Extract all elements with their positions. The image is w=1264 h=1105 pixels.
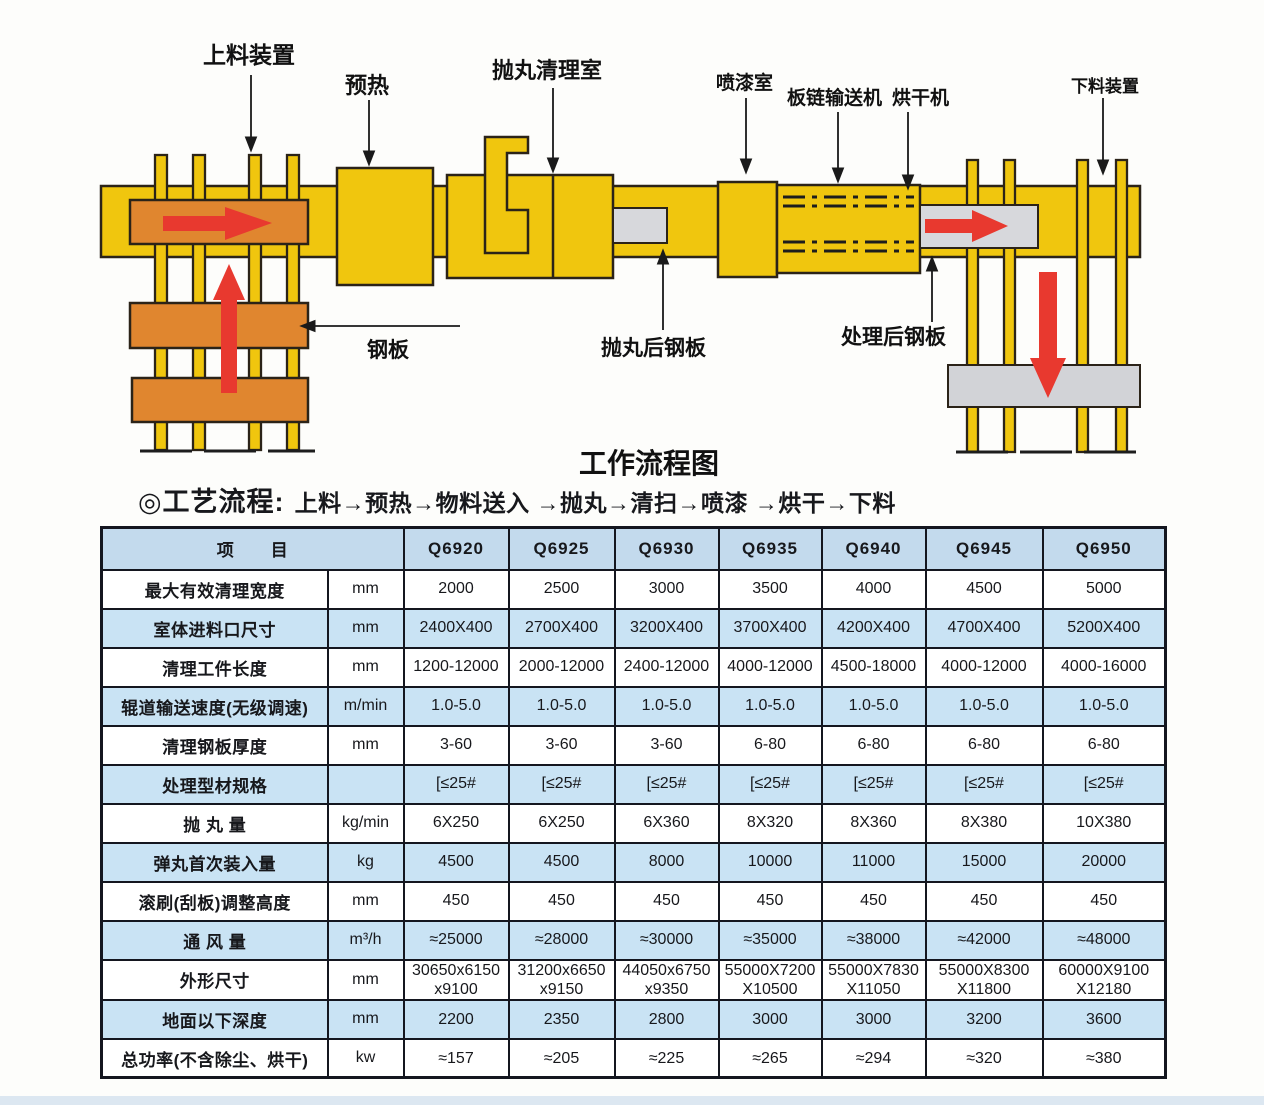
spec-cell: 3-60 [615, 726, 719, 765]
spec-cell: ≈35000 [719, 921, 822, 960]
spec-cell: 2350 [509, 1000, 615, 1039]
spec-cell: 6-80 [719, 726, 822, 765]
spec-row: 室体进料口尺寸mm2400X4002700X4003200X4003700X40… [102, 609, 1166, 648]
spec-cell: 450 [926, 882, 1043, 921]
spec-cell: 8000 [615, 843, 719, 882]
spec-cell: 60000X9100 X12180 [1043, 960, 1166, 1000]
spec-row: 弹丸首次装入量kg4500450080001000011000150002000… [102, 843, 1166, 882]
spec-cell: 1.0-5.0 [615, 687, 719, 726]
process-flow-label: ◎工艺流程: [138, 480, 285, 519]
spec-cell: 450 [509, 882, 615, 921]
diagram-title: 工作流程图 [579, 448, 719, 479]
spec-cell: 4000-16000 [1043, 648, 1166, 687]
spec-cell: 8X320 [719, 804, 822, 843]
post [1004, 160, 1015, 452]
spec-row-unit: kg [328, 843, 404, 882]
spec-cell: 2800 [615, 1000, 719, 1039]
spec-cell: 2200 [404, 1000, 509, 1039]
paint-room-box [718, 182, 777, 277]
spec-row-unit: m³/h [328, 921, 404, 960]
blasted-plate [613, 208, 667, 243]
blast-room-box [447, 175, 613, 278]
spec-row-label: 外形尺寸 [102, 960, 328, 1000]
label-chain-conveyor: 板链输送机 [787, 86, 882, 109]
spec-cell: 2400-12000 [615, 648, 719, 687]
spec-table-wrap: 项 目Q6920Q6925Q6930Q6935Q6940Q6945Q6950最大… [100, 526, 1167, 1079]
spec-row: 处理型材规格[≤25#[≤25#[≤25#[≤25#[≤25#[≤25#[≤25… [102, 765, 1166, 804]
spec-cell: 55000X7830 X11050 [822, 960, 926, 1000]
spec-cell: 4000-12000 [926, 648, 1043, 687]
spec-cell: 3-60 [404, 726, 509, 765]
spec-cell: 55000X8300 X11800 [926, 960, 1043, 1000]
spec-row-unit [328, 765, 404, 804]
spec-cell: ≈38000 [822, 921, 926, 960]
spec-cell: 3000 [719, 1000, 822, 1039]
spec-row: 滚刷(刮板)调整高度mm450450450450450450450 [102, 882, 1166, 921]
spec-row: 清理工件长度mm1200-120002000-120002400-1200040… [102, 648, 1166, 687]
spec-row: 通 风 量m³/h≈25000≈28000≈30000≈35000≈38000≈… [102, 921, 1166, 960]
spec-row: 辊道输送速度(无级调速)m/min1.0-5.01.0-5.01.0-5.01.… [102, 687, 1166, 726]
spec-cell: 55000X7200 X10500 [719, 960, 822, 1000]
spec-cell: 11000 [822, 843, 926, 882]
workflow-diagram: 上料装置 预热 抛丸清理室 喷漆室 板链输送机 烘干机 下料装置 钢板 抛丸后钢… [0, 0, 1264, 480]
spec-row-label: 弹丸首次装入量 [102, 843, 328, 882]
spec-cell: 1.0-5.0 [926, 687, 1043, 726]
spec-cell: 3700X400 [719, 609, 822, 648]
spec-row-unit: mm [328, 726, 404, 765]
spec-cell: 1.0-5.0 [509, 687, 615, 726]
spec-row-label: 抛 丸 量 [102, 804, 328, 843]
spec-cell: ≈265 [719, 1039, 822, 1078]
post [1077, 160, 1088, 452]
spec-cell: 6-80 [822, 726, 926, 765]
spec-cell: [≤25# [1043, 765, 1166, 804]
spec-row-unit: mm [328, 570, 404, 609]
spec-cell: 5000 [1043, 570, 1166, 609]
spec-cell: [≤25# [822, 765, 926, 804]
spec-cell: [≤25# [404, 765, 509, 804]
spec-cell: 1.0-5.0 [1043, 687, 1166, 726]
spec-row: 抛 丸 量kg/min6X2506X2506X3608X3208X3608X38… [102, 804, 1166, 843]
spec-row-unit: mm [328, 609, 404, 648]
spec-cell: 6X250 [509, 804, 615, 843]
spec-cell: 8X360 [822, 804, 926, 843]
spec-row-unit: mm [328, 1000, 404, 1039]
spec-cell: 1.0-5.0 [404, 687, 509, 726]
label-unloading-device: 下料装置 [1071, 76, 1139, 96]
spec-row-unit: mm [328, 960, 404, 1000]
post [1116, 160, 1127, 452]
spec-row: 最大有效清理宽度mm2000250030003500400045005000 [102, 570, 1166, 609]
spec-cell: 4200X400 [822, 609, 926, 648]
spec-cell: 450 [1043, 882, 1166, 921]
spec-cell: 1.0-5.0 [822, 687, 926, 726]
spec-row: 总功率(不含除尘、烘干)kw≈157≈205≈225≈265≈294≈320≈3… [102, 1039, 1166, 1078]
spec-row-label: 辊道输送速度(无级调速) [102, 687, 328, 726]
spec-cell: ≈25000 [404, 921, 509, 960]
page: 上料装置 预热 抛丸清理室 喷漆室 板链输送机 烘干机 下料装置 钢板 抛丸后钢… [0, 0, 1264, 1105]
label-preheat: 预热 [345, 73, 389, 98]
spec-cell: 4500 [404, 843, 509, 882]
spec-header-model: Q6925 [509, 528, 615, 570]
spec-cell: ≈225 [615, 1039, 719, 1078]
spec-cell: 5200X400 [1043, 609, 1166, 648]
spec-table: 项 目Q6920Q6925Q6930Q6935Q6940Q6945Q6950最大… [100, 526, 1167, 1079]
spec-cell: [≤25# [615, 765, 719, 804]
spec-cell: 10000 [719, 843, 822, 882]
spec-cell: 44050x6750 x9350 [615, 960, 719, 1000]
steel-plate-stack-1 [130, 303, 308, 348]
spec-header-model: Q6920 [404, 528, 509, 570]
spec-cell: 3600 [1043, 1000, 1166, 1039]
spec-cell: ≈30000 [615, 921, 719, 960]
spec-cell: ≈28000 [509, 921, 615, 960]
spec-cell: 30650x6150 x9100 [404, 960, 509, 1000]
spec-cell: 6-80 [1043, 726, 1166, 765]
process-flow-line: ◎工艺流程: 上料→预热→物料送入 →抛丸→清扫→喷漆 →烘干→下料 [138, 480, 1138, 516]
spec-cell: 2000 [404, 570, 509, 609]
label-loading-device: 上料装置 [203, 42, 295, 68]
spec-cell: 6-80 [926, 726, 1043, 765]
spec-row-unit: m/min [328, 687, 404, 726]
spec-cell: 6X250 [404, 804, 509, 843]
spec-cell: 8X380 [926, 804, 1043, 843]
spec-row-unit: mm [328, 648, 404, 687]
spec-row-label: 总功率(不含除尘、烘干) [102, 1039, 328, 1078]
spec-cell: ≈320 [926, 1039, 1043, 1078]
spec-header-model: Q6930 [615, 528, 719, 570]
spec-cell: 3200X400 [615, 609, 719, 648]
process-flow-steps: 上料→预热→物料送入 →抛丸→清扫→喷漆 →烘干→下料 [295, 484, 896, 518]
spec-row-label: 清理工件长度 [102, 648, 328, 687]
steel-plate-stack-2 [132, 378, 308, 422]
spec-row-unit: kg/min [328, 804, 404, 843]
spec-row-label: 最大有效清理宽度 [102, 570, 328, 609]
spec-cell: 4000 [822, 570, 926, 609]
spec-cell: 450 [404, 882, 509, 921]
spec-cell: ≈205 [509, 1039, 615, 1078]
spec-row-label: 室体进料口尺寸 [102, 609, 328, 648]
spec-header-row: 项 目Q6920Q6925Q6930Q6935Q6940Q6945Q6950 [102, 528, 1166, 570]
label-paint-room: 喷漆室 [716, 71, 773, 94]
spec-header-model: Q6950 [1043, 528, 1166, 570]
bottom-strip [0, 1096, 1264, 1105]
spec-cell: 4700X400 [926, 609, 1043, 648]
spec-cell: 3200 [926, 1000, 1043, 1039]
spec-header-model: Q6935 [719, 528, 822, 570]
spec-row-unit: mm [328, 882, 404, 921]
spec-cell: 6X360 [615, 804, 719, 843]
spec-cell: 2500 [509, 570, 615, 609]
spec-cell: 450 [615, 882, 719, 921]
label-dryer: 烘干机 [892, 87, 949, 109]
spec-header-item: 项 目 [102, 528, 404, 570]
preheat-box [337, 168, 433, 285]
spec-header-model: Q6940 [822, 528, 926, 570]
spec-row: 清理钢板厚度mm3-603-603-606-806-806-806-80 [102, 726, 1166, 765]
spec-cell: 4500 [509, 843, 615, 882]
spec-cell: 2700X400 [509, 609, 615, 648]
spec-cell: 1200-12000 [404, 648, 509, 687]
spec-row-label: 通 风 量 [102, 921, 328, 960]
spec-cell: 3500 [719, 570, 822, 609]
spec-row: 地面以下深度mm2200235028003000300032003600 [102, 1000, 1166, 1039]
label-blasted-plate: 抛丸后钢板 [601, 336, 707, 360]
spec-header-model: Q6945 [926, 528, 1043, 570]
spec-cell: 20000 [1043, 843, 1166, 882]
spec-cell: 10X380 [1043, 804, 1166, 843]
spec-cell: ≈380 [1043, 1039, 1166, 1078]
spec-cell: ≈157 [404, 1039, 509, 1078]
spec-cell: [≤25# [926, 765, 1043, 804]
spec-cell: 31200x6650 x9150 [509, 960, 615, 1000]
spec-cell: 4500-18000 [822, 648, 926, 687]
spec-cell: ≈294 [822, 1039, 926, 1078]
spec-cell: 2000-12000 [509, 648, 615, 687]
spec-cell: 450 [719, 882, 822, 921]
spec-cell: ≈42000 [926, 921, 1043, 960]
spec-cell: 4500 [926, 570, 1043, 609]
spec-row-label: 滚刷(刮板)调整高度 [102, 882, 328, 921]
label-treated-plate: 处理后钢板 [840, 325, 947, 349]
spec-row-label: 处理型材规格 [102, 765, 328, 804]
spec-cell: 450 [822, 882, 926, 921]
spec-cell: 3000 [615, 570, 719, 609]
spec-cell: ≈48000 [1043, 921, 1166, 960]
spec-row-label: 地面以下深度 [102, 1000, 328, 1039]
spec-cell: 1.0-5.0 [719, 687, 822, 726]
spec-cell: 15000 [926, 843, 1043, 882]
spec-row-label: 清理钢板厚度 [102, 726, 328, 765]
spec-cell: 3-60 [509, 726, 615, 765]
post [967, 160, 978, 452]
spec-row-unit: kw [328, 1039, 404, 1078]
label-blast-room: 抛丸清理室 [492, 58, 602, 83]
spec-cell: 3000 [822, 1000, 926, 1039]
label-steel-plate: 钢板 [367, 338, 410, 362]
spec-cell: 4000-12000 [719, 648, 822, 687]
spec-row: 外形尺寸mm30650x6150 x910031200x6650 x915044… [102, 960, 1166, 1000]
spec-cell: 2400X400 [404, 609, 509, 648]
spec-cell: [≤25# [509, 765, 615, 804]
spec-cell: [≤25# [719, 765, 822, 804]
